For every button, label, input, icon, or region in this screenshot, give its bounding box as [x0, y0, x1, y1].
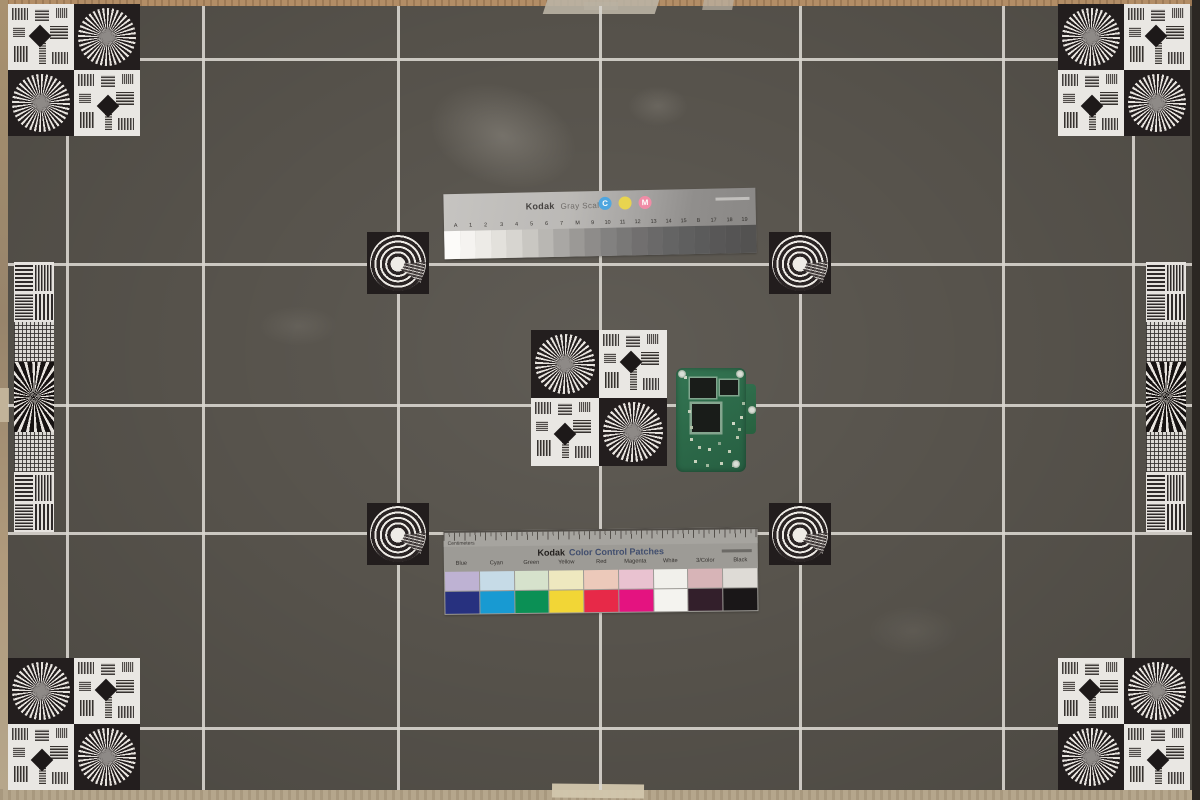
scuff-mark: [258, 306, 338, 346]
gray-step: [647, 227, 663, 255]
gray-step: [491, 230, 507, 258]
solid-patch: [689, 588, 723, 611]
ring-target-upper-left: [367, 232, 429, 294]
step-label: 6: [540, 221, 554, 227]
siemens-star-patch: [74, 4, 140, 70]
tint-patch: [549, 570, 583, 590]
center-dot: [392, 258, 404, 270]
center-dot: [794, 529, 806, 541]
step-label: 12: [631, 219, 645, 225]
color-label: White: [654, 558, 687, 568]
ring-target-lower-left: [367, 503, 429, 565]
line-pattern-block: [1146, 472, 1186, 532]
masking-tape: [552, 784, 644, 799]
ruler-label: Centimeters: [448, 541, 475, 547]
step-label: 9: [586, 220, 600, 226]
gray-step: [444, 231, 460, 259]
siemens-star-patch: [8, 658, 74, 724]
solid-patch: [584, 590, 618, 613]
solid-patch: [550, 590, 584, 613]
gray-step-wedge: [444, 225, 757, 260]
pcb-circuit-board: [674, 364, 756, 474]
kodak-color-control-patches: Centimeters Kodak Color Control Patches …: [443, 527, 758, 615]
siemens-star-patch: [1058, 724, 1124, 790]
scuff-mark: [628, 86, 688, 126]
gray-step: [460, 231, 476, 259]
siemens-star-patch: [74, 724, 140, 790]
kodak-logo-text: Kodak: [526, 201, 555, 212]
gray-step: [709, 225, 725, 253]
grid-line-h5: [140, 727, 1070, 730]
solid-patch: [515, 590, 549, 613]
resolution-patch: [599, 330, 667, 398]
color-label: Red: [584, 559, 617, 569]
fine-grid-patch: [14, 432, 54, 472]
line-pattern-block: [14, 472, 54, 532]
magenta-dot: M: [638, 196, 651, 209]
pcb-screw-pad: [732, 460, 740, 468]
step-label: 18: [722, 217, 736, 223]
chart-board: Kodak Gray Scale C M A1234567M9101112131…: [8, 6, 1192, 790]
grid-line-h1: [140, 58, 1070, 61]
cym-dots: C M: [598, 196, 651, 210]
line-pattern-block: [1146, 262, 1186, 322]
step-label: 3: [494, 222, 508, 228]
grid-line-v2: [202, 6, 205, 790]
resolution-patch: [1124, 4, 1190, 70]
center-pattern-block: [531, 330, 667, 466]
solid-patch: [619, 589, 653, 612]
step-label: 5: [525, 222, 539, 228]
center-dot: [392, 529, 404, 541]
resolution-patch: [8, 4, 74, 70]
gray-step: [678, 226, 694, 254]
step-label: M: [570, 221, 584, 227]
grid-line-v3: [397, 6, 400, 790]
resolution-patch: [1124, 724, 1190, 790]
corner-pattern-top-right: [1058, 4, 1190, 136]
pcb-screw-pad: [748, 406, 756, 414]
gray-step: [569, 228, 585, 256]
scuff-mark: [868, 606, 958, 656]
gray-step: [662, 226, 678, 254]
resolution-patch: [8, 724, 74, 790]
gray-step: [631, 227, 647, 255]
cyan-dot: C: [598, 197, 611, 210]
pcb-body: [676, 368, 746, 472]
ring-target-upper-right: [769, 232, 831, 294]
edge-wedge-strip-right: [1146, 262, 1186, 532]
step-label: 10: [601, 220, 615, 226]
masking-tape: [702, 0, 734, 10]
gray-step: [725, 225, 741, 253]
color-label: Black: [724, 557, 757, 567]
resolution-patch: [74, 658, 140, 724]
fine-grid-patch: [14, 322, 54, 362]
edge-wedge-strip-left: [14, 262, 54, 532]
step-label: 19: [738, 217, 752, 223]
kodak-logo-text: Kodak: [537, 548, 565, 558]
yellow-dot: [618, 196, 631, 209]
step-label: 2: [479, 223, 493, 229]
color-label: Green: [514, 560, 547, 570]
fine-print: [715, 197, 749, 201]
color-label: Cyan: [480, 560, 513, 570]
fine-grid-patch: [1146, 322, 1186, 362]
fine-grid-patch: [1146, 432, 1186, 472]
siemens-star-patch: [1124, 70, 1190, 136]
resolution-patch: [74, 70, 140, 136]
tint-patch: [515, 570, 549, 590]
scuff-mark: [416, 65, 590, 206]
tint-patch: [619, 569, 653, 589]
color-label: Magenta: [619, 559, 652, 569]
center-dot: [794, 258, 806, 270]
gray-step: [522, 229, 538, 257]
hyperbolic-star-patch: [1146, 362, 1186, 432]
step-label: 1: [464, 223, 478, 229]
test-chart-photo: Kodak Gray Scale C M A1234567M9101112131…: [0, 0, 1200, 800]
step-label: 14: [662, 219, 676, 225]
tint-patch: [654, 569, 688, 589]
gray-step: [506, 230, 522, 258]
siemens-star-patch: [1124, 658, 1190, 724]
gray-step: [616, 227, 632, 255]
step-label: 7: [555, 221, 569, 227]
step-label: 17: [707, 218, 721, 224]
step-label: 4: [510, 222, 524, 228]
resolution-patch: [1058, 658, 1124, 724]
color-label: 3/Color: [689, 558, 722, 568]
color-label: Blue: [445, 561, 478, 571]
kodak-gray-scale: Kodak Gray Scale C M A1234567M9101112131…: [443, 188, 756, 260]
tint-patch: [445, 571, 479, 591]
grid-line-v6: [1002, 6, 1005, 790]
siemens-star-patch: [8, 70, 74, 136]
gray-step: [694, 226, 710, 254]
line-pattern-block: [14, 262, 54, 322]
pcb-chip-rectangular: [690, 378, 716, 398]
hyperbolic-star-patch: [14, 362, 54, 432]
step-label: A: [449, 223, 463, 229]
tint-patch: [584, 569, 618, 589]
step-label: 15: [677, 218, 691, 224]
solid-patch-row: [444, 588, 758, 614]
resolution-patch: [1058, 70, 1124, 136]
siemens-star-patch: [531, 330, 599, 398]
step-label: B: [692, 218, 706, 224]
ring-target-lower-right: [769, 503, 831, 565]
tint-patch: [688, 568, 722, 588]
tint-patch: [480, 571, 514, 591]
step-label: 11: [616, 220, 630, 226]
solid-patch: [723, 588, 757, 611]
fine-print: [722, 549, 752, 552]
solid-patch: [480, 591, 514, 614]
resolution-patch: [531, 398, 599, 466]
step-label: 13: [646, 219, 660, 225]
pcb-screw-pad: [678, 370, 686, 378]
gray-step: [538, 229, 554, 257]
gray-step: [475, 230, 491, 258]
solid-patch: [445, 591, 479, 614]
gray-step: [740, 225, 756, 253]
pcb-screw-pad: [736, 370, 744, 378]
gray-step: [600, 228, 616, 256]
siemens-star-patch: [599, 398, 667, 466]
corner-pattern-bottom-right: [1058, 658, 1190, 790]
tint-patch-row: [444, 568, 758, 591]
pcb-chip-small: [720, 380, 738, 395]
color-label: Yellow: [549, 559, 582, 569]
shadow-edge-right: [1192, 0, 1200, 800]
solid-patch: [654, 589, 688, 612]
grid-line-v5: [799, 6, 802, 790]
pcb-chip-qfp: [692, 404, 720, 432]
tint-patch: [723, 568, 757, 588]
corner-pattern-top-left: [8, 4, 140, 136]
gray-step: [553, 229, 569, 257]
gray-step: [584, 228, 600, 256]
siemens-star-patch: [1058, 4, 1124, 70]
color-patches-title: Color Control Patches: [569, 546, 664, 557]
corner-pattern-bottom-left: [8, 658, 140, 790]
